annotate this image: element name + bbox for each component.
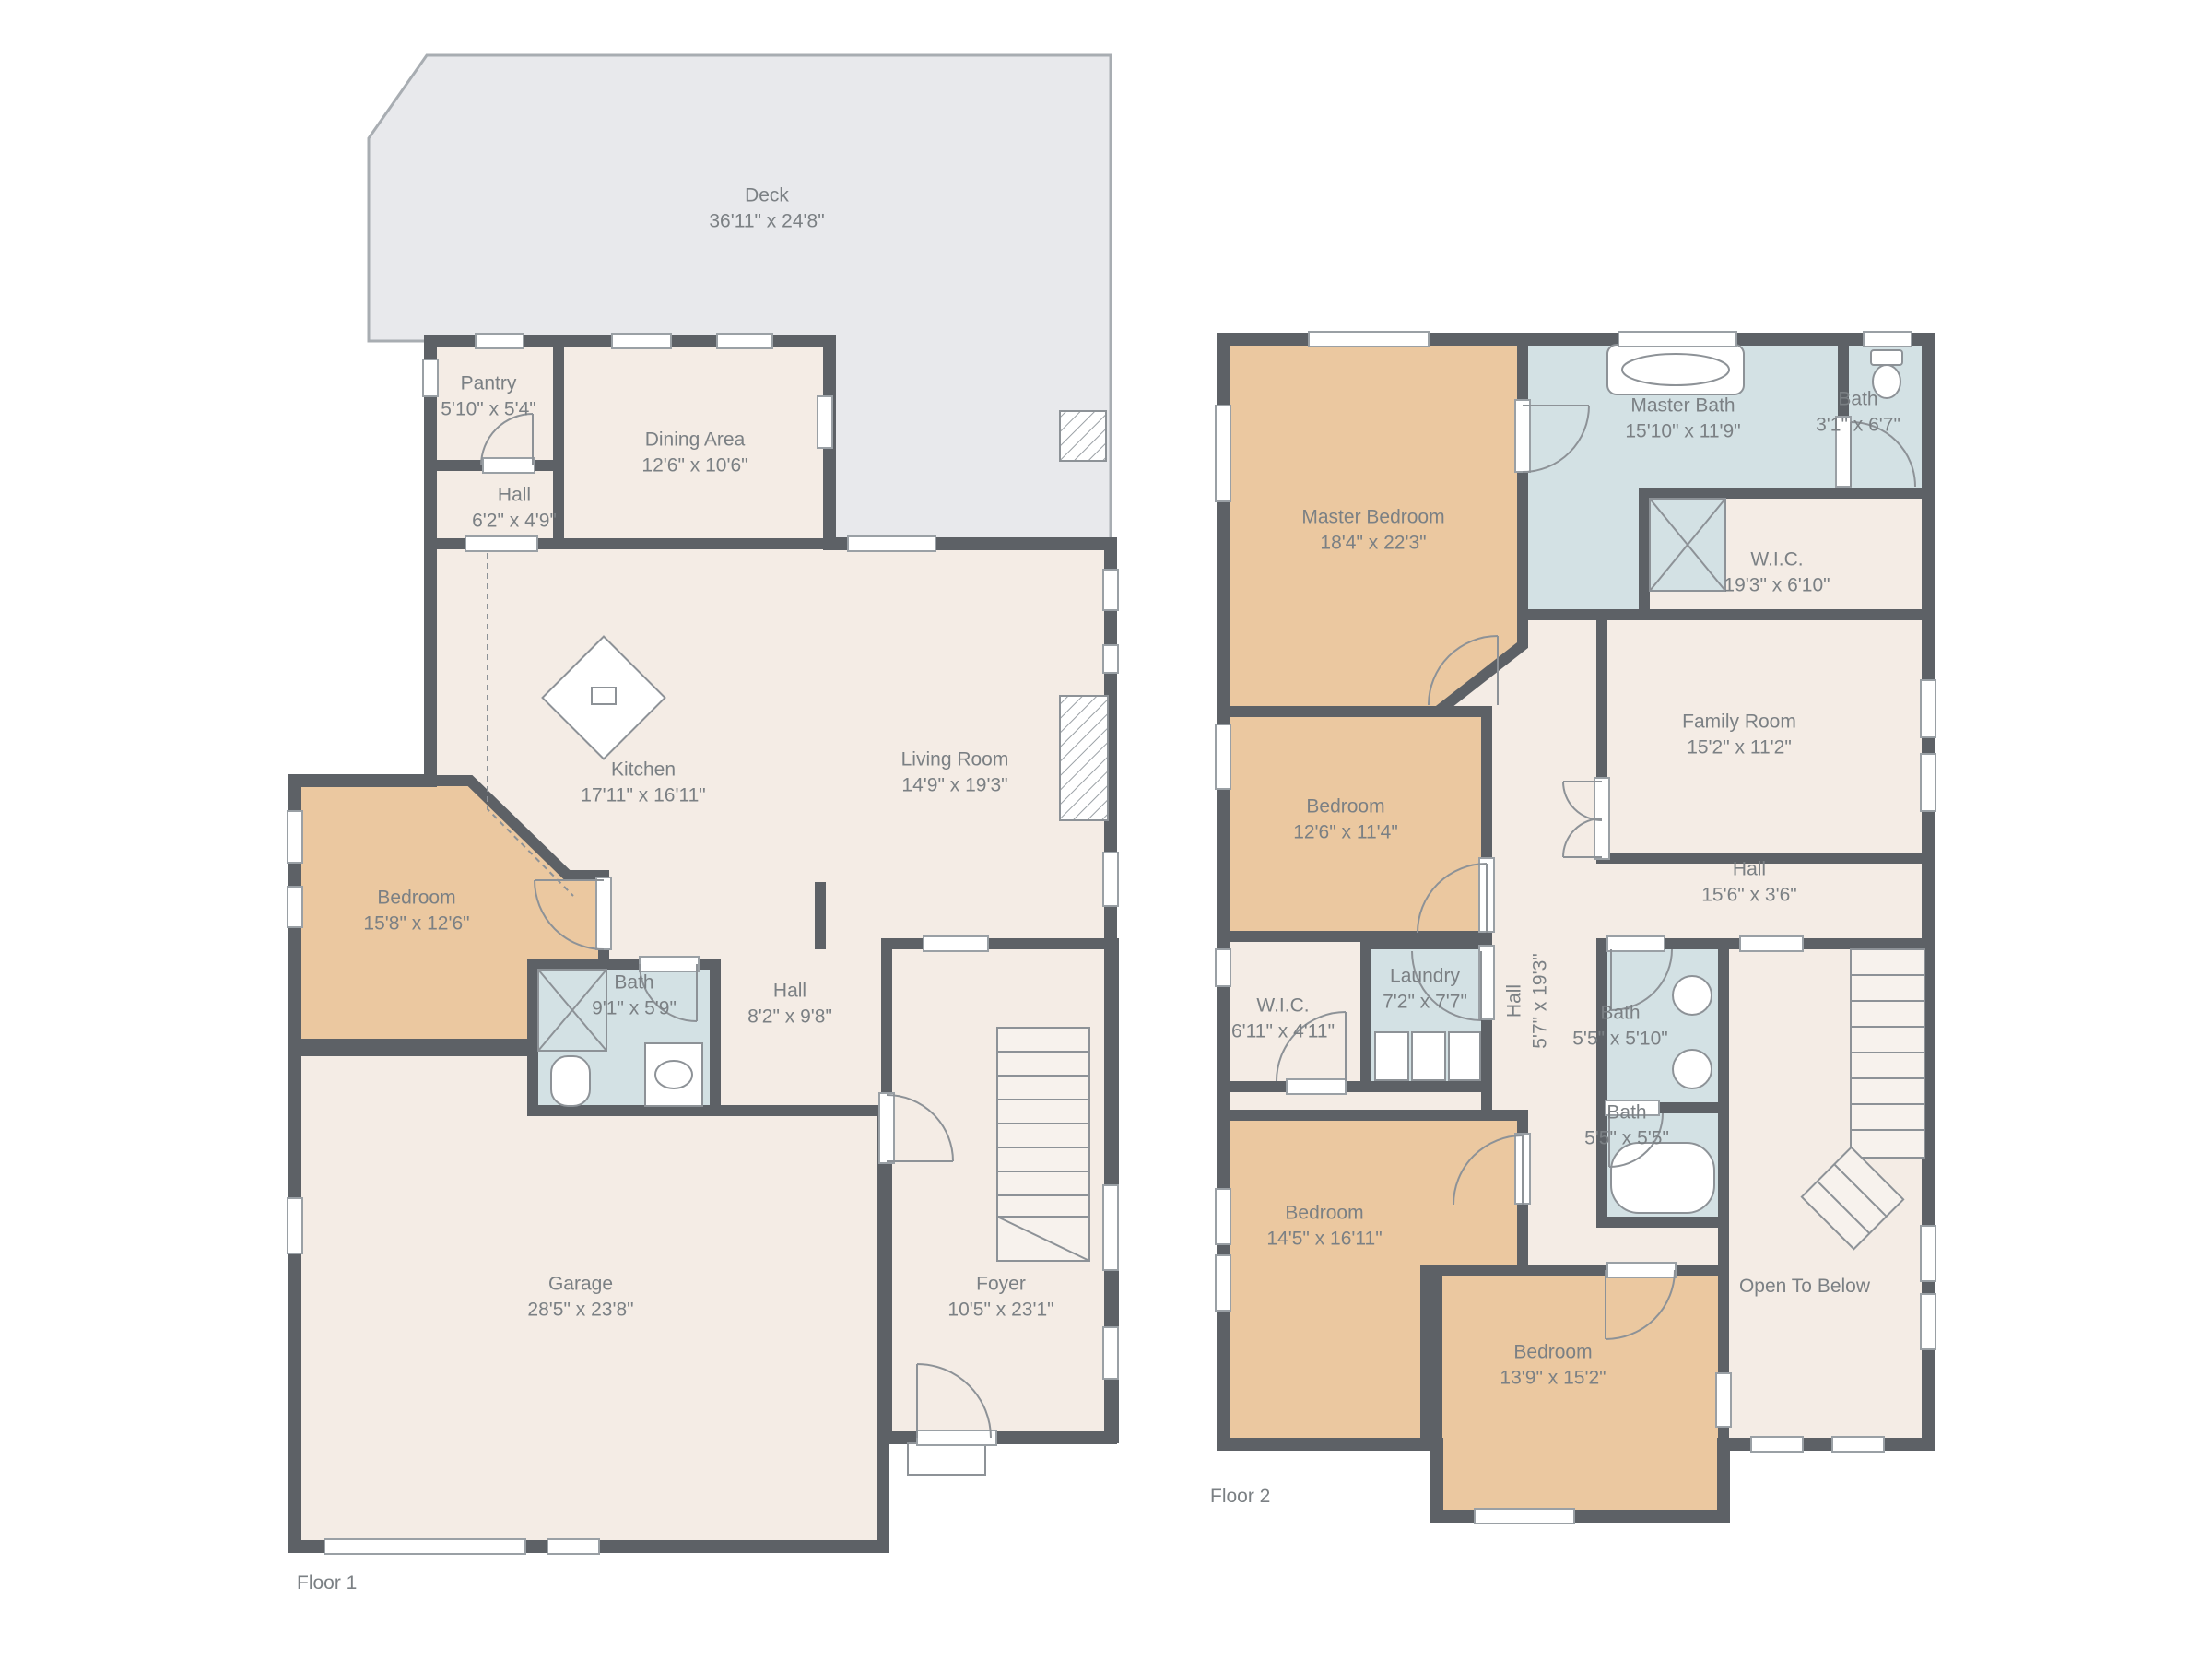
room-label-bath-small: Bath 3'1" x 6'7" <box>1816 386 1900 437</box>
room-label-bedroom-2: Bedroom 12'6" x 11'4" <box>1293 794 1398 844</box>
room-label-bath-upper: Bath 5'5" x 5'10" <box>1572 1000 1668 1051</box>
room-dims: 19'3" x 6'10" <box>1724 572 1830 598</box>
room-dims: 15'2" x 11'2" <box>1682 735 1796 760</box>
tub-icon <box>551 1056 590 1106</box>
room-dims: 28'5" x 23'8" <box>527 1297 633 1323</box>
room-dims: 10'5" x 23'1" <box>947 1297 1053 1323</box>
room-label-hall-vertical: Hall 5'7" x 19'3" <box>1501 953 1552 1049</box>
room-label-deck: Deck 36'11" x 24'8" <box>709 182 824 233</box>
chimney-icon <box>1060 411 1106 461</box>
room-name: Bath <box>592 970 677 995</box>
room-bedroom-4 <box>1437 1270 1724 1516</box>
room-name: Kitchen <box>581 757 705 782</box>
sink-icon <box>1673 1050 1712 1088</box>
room-name: W.I.C. <box>1724 547 1830 572</box>
room-dims: 6'11" x 4'11" <box>1231 1018 1335 1044</box>
room-label-family: Family Room 15'2" x 11'2" <box>1682 709 1796 759</box>
room-label-open-below: Open To Below <box>1739 1274 1870 1300</box>
room-label-hall-upper: Hall 6'2" x 4'9" <box>472 482 557 533</box>
fireplace-icon <box>1060 696 1108 820</box>
room-label-living: Living Room 14'9" x 19'3" <box>901 747 1009 797</box>
room-label-dining: Dining Area 12'6" x 10'6" <box>641 427 747 477</box>
room-label-hall-main: Hall 15'6" x 3'6" <box>1701 856 1797 907</box>
room-name: Bath <box>1816 386 1900 412</box>
room-name: Bath <box>1572 1000 1668 1026</box>
room-label-master-bath: Master Bath 15'10" x 11'9" <box>1625 393 1740 443</box>
room-name: Bedroom <box>1293 794 1398 819</box>
room-label-hall-lower: Hall 8'2" x 9'8" <box>747 978 832 1029</box>
floor2-title: Floor 2 <box>1210 1486 1270 1508</box>
room-dims: 36'11" x 24'8" <box>709 208 824 234</box>
room-label-wic-large: W.I.C. 19'3" x 6'10" <box>1724 547 1830 597</box>
room-label-bath-lower: Bath 5'5" x 5'5" <box>1584 1100 1669 1150</box>
room-label-bedroom-4: Bedroom 13'9" x 15'2" <box>1500 1339 1606 1390</box>
room-name: Master Bedroom <box>1301 504 1444 530</box>
room-dims: 6'2" x 4'9" <box>472 508 557 534</box>
room-label-pantry: Pantry 5'10" x 5'4" <box>441 371 536 421</box>
room-name: Hall <box>1701 856 1797 882</box>
room-label-kitchen: Kitchen 17'11" x 16'11" <box>581 757 705 807</box>
room-label-garage: Garage 28'5" x 23'8" <box>527 1271 633 1322</box>
room-name: Deck <box>709 182 824 208</box>
room-dims: 5'5" x 5'10" <box>1572 1026 1668 1052</box>
room-dims: 13'9" x 15'2" <box>1500 1365 1606 1391</box>
room-label-bath-f1: Bath 9'1" x 5'9" <box>592 970 677 1020</box>
room-name: Pantry <box>441 371 536 396</box>
room-dims: 15'10" x 11'9" <box>1625 418 1740 444</box>
vanity-icon <box>645 1043 702 1106</box>
room-dims: 8'2" x 9'8" <box>747 1004 832 1030</box>
room-dims: 15'6" x 3'6" <box>1701 882 1797 908</box>
room-dims: 5'10" x 5'4" <box>441 396 536 422</box>
room-label-bedroom-3: Bedroom 14'5" x 16'11" <box>1266 1200 1382 1251</box>
room-name: Hall <box>1501 953 1527 1049</box>
tub-icon <box>1607 345 1744 394</box>
room-name: Bath <box>1584 1100 1669 1125</box>
room-dims: 18'4" x 22'3" <box>1301 530 1444 556</box>
room-dims: 15'8" x 12'6" <box>363 911 469 936</box>
room-name: Laundry <box>1382 963 1467 989</box>
room-label-master-bedroom: Master Bedroom 18'4" x 22'3" <box>1301 504 1444 555</box>
room-dims: 12'6" x 10'6" <box>641 453 747 478</box>
room-name: Bedroom <box>363 885 469 911</box>
room-name: Open To Below <box>1739 1274 1870 1300</box>
room-label-bedroom-f1: Bedroom 15'8" x 12'6" <box>363 885 469 935</box>
tub-icon <box>1611 1143 1714 1213</box>
room-dims: 14'5" x 16'11" <box>1266 1226 1382 1252</box>
room-dims: 12'6" x 11'4" <box>1293 819 1398 845</box>
floorplan-page: Deck 36'11" x 24'8" Pantry 5'10" x 5'4" … <box>0 0 2212 1659</box>
room-label-foyer: Foyer 10'5" x 23'1" <box>947 1271 1053 1322</box>
stairs-f1-icon <box>997 1028 1089 1261</box>
room-name: Family Room <box>1682 709 1796 735</box>
room-dims: 9'1" x 5'9" <box>592 995 677 1021</box>
room-name: W.I.C. <box>1231 993 1335 1018</box>
room-name: Foyer <box>947 1271 1053 1297</box>
room-name: Hall <box>472 482 557 508</box>
room-dims: 7'2" x 7'7" <box>1382 989 1467 1015</box>
floor1-title: Floor 1 <box>297 1572 357 1594</box>
room-name: Hall <box>747 978 832 1004</box>
room-name: Garage <box>527 1271 633 1297</box>
room-name: Bedroom <box>1500 1339 1606 1365</box>
room-label-laundry: Laundry 7'2" x 7'7" <box>1382 963 1467 1014</box>
room-name: Dining Area <box>641 427 747 453</box>
room-dims: 5'5" x 5'5" <box>1584 1125 1669 1151</box>
room-dims: 17'11" x 16'11" <box>581 782 705 808</box>
room-label-wic-small: W.I.C. 6'11" x 4'11" <box>1231 993 1335 1043</box>
porch-steps-icon <box>908 1443 985 1475</box>
sink-icon <box>1673 976 1712 1015</box>
room-name: Master Bath <box>1625 393 1740 418</box>
room-name: Bedroom <box>1266 1200 1382 1226</box>
room-dims: 14'9" x 19'3" <box>901 772 1009 798</box>
laundry-machines-icon <box>1375 1032 1480 1080</box>
toilet-icon <box>1871 350 1902 365</box>
room-dims: 5'7" x 19'3" <box>1527 953 1553 1049</box>
floorplan-canvas <box>0 0 2212 1659</box>
room-dims: 3'1" x 6'7" <box>1816 412 1900 438</box>
room-name: Living Room <box>901 747 1009 772</box>
